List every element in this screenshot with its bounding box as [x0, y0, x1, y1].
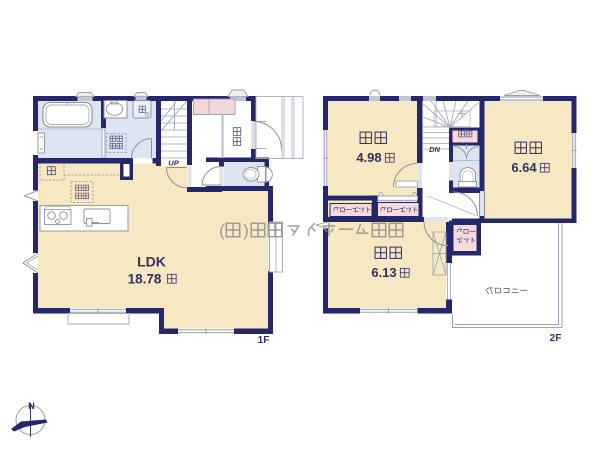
- svg-text:): ): [243, 221, 249, 240]
- svg-text:1F: 1F: [258, 335, 270, 346]
- svg-text:6.64: 6.64: [511, 160, 537, 175]
- svg-text:DN: DN: [429, 145, 440, 154]
- svg-text:N: N: [28, 401, 35, 411]
- svg-text:6.13: 6.13: [371, 265, 396, 280]
- svg-text:4.98: 4.98: [356, 150, 381, 165]
- svg-text:UP: UP: [168, 159, 179, 168]
- svg-text:(: (: [219, 221, 225, 240]
- svg-text:2F: 2F: [550, 333, 562, 344]
- svg-text:LDK: LDK: [137, 254, 166, 270]
- svg-text:18.78: 18.78: [128, 272, 162, 287]
